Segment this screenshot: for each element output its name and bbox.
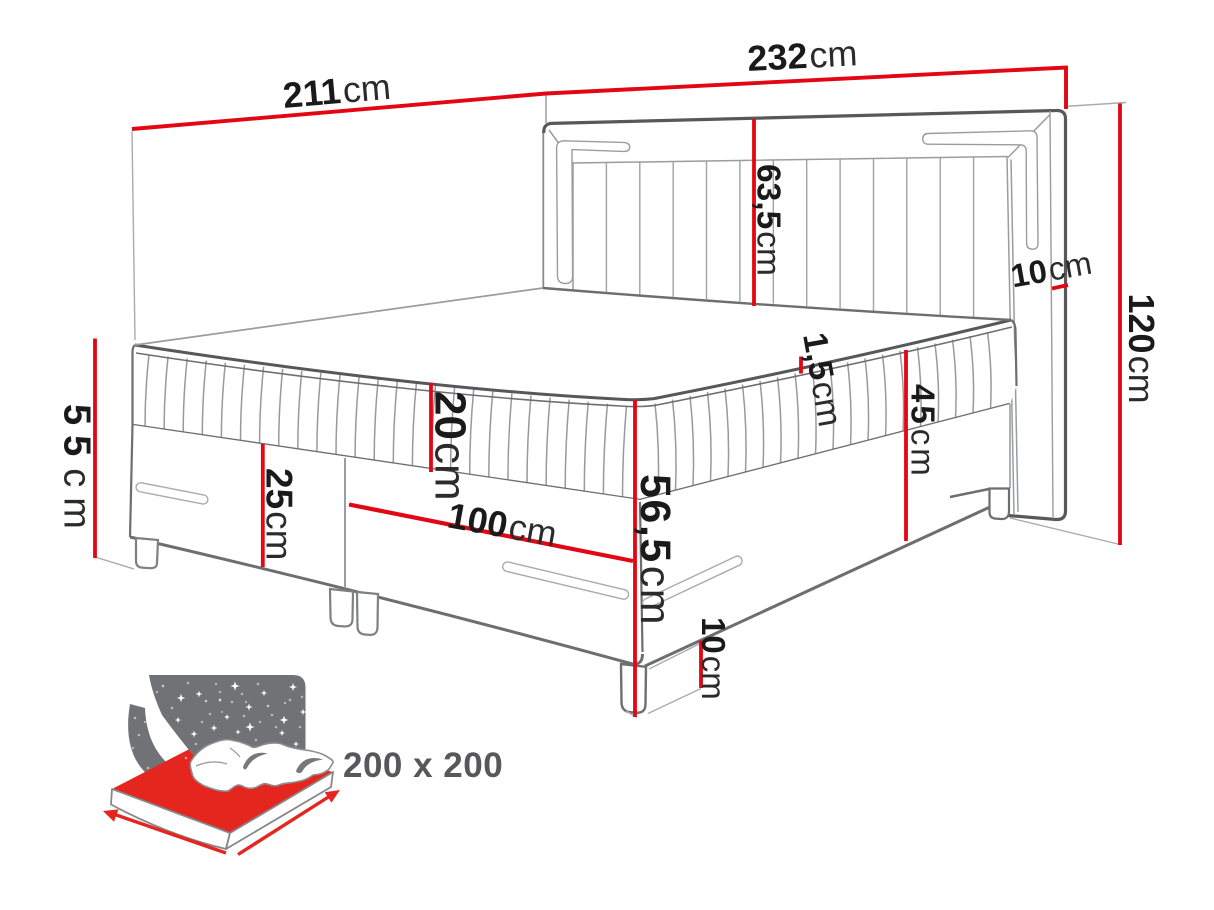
svg-text:120cm: 120cm bbox=[1121, 294, 1162, 404]
svg-text:200 x 200: 200 x 200 bbox=[343, 746, 503, 785]
svg-text:232cm: 232cm bbox=[746, 32, 858, 79]
svg-text:20cm: 20cm bbox=[426, 391, 475, 501]
svg-text:63,5cm: 63,5cm bbox=[750, 164, 787, 276]
svg-text:56,5cm: 56,5cm bbox=[631, 474, 679, 626]
svg-text:10cm: 10cm bbox=[695, 617, 732, 700]
svg-text:25cm: 25cm bbox=[259, 468, 300, 560]
svg-text:45cm: 45cm bbox=[905, 384, 942, 479]
svg-text:55cm: 55cm bbox=[56, 404, 98, 539]
